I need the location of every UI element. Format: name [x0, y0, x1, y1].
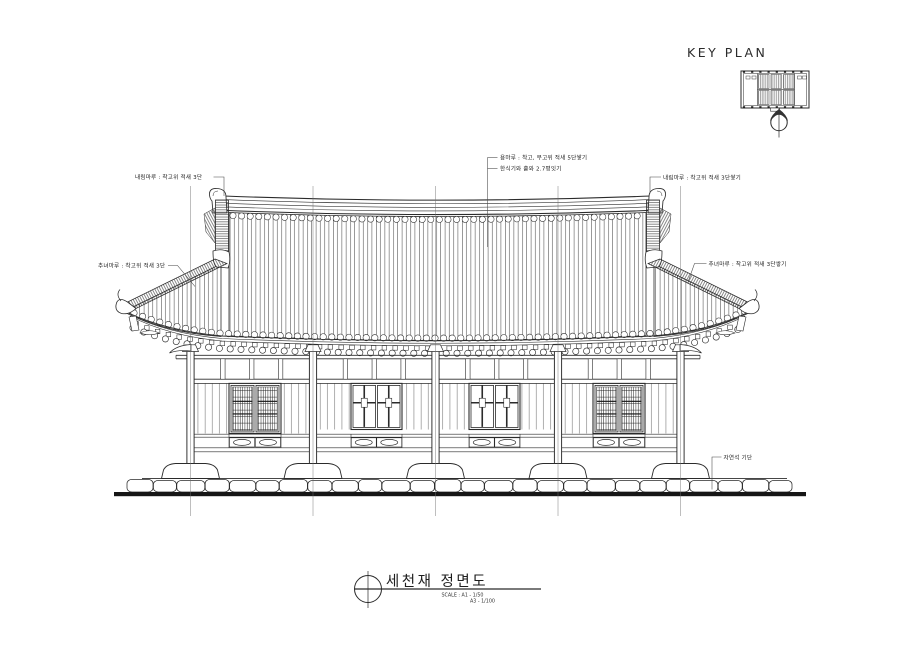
- annotation-foundation: 자연석 기단: [724, 454, 753, 462]
- annotation-left-chunyeo: 추녀마루 : 착고위 적새 3단: [98, 262, 165, 270]
- key-plan-title: KEY PLAN: [687, 45, 767, 60]
- drawing-title: 세천재 정면도: [386, 573, 488, 590]
- annotation-right-chunyeo: 추녀마루 : 착고위 적새 3단쌓기: [709, 260, 787, 268]
- key-plan: KEY PLAN: [687, 45, 809, 138]
- foundation: [114, 464, 806, 497]
- scale-text-2: A3 - 1/100: [470, 599, 495, 605]
- scale-text-1: SCALE : A1 - 1/50: [442, 593, 484, 599]
- title-block: 세천재 정면도 SCALE : A1 - 1/50 A3 - 1/100: [355, 571, 542, 608]
- roof: [116, 188, 759, 356]
- annotation-left-naerim: 내림마루 : 착고위 적새 3단: [135, 173, 202, 181]
- annotation-ridge-1: 용마루 : 착고, 부고위 적새 5단쌓기: [500, 154, 587, 162]
- annotation-right-naerim: 내림마루 : 착고위 적새 3단쌓기: [663, 174, 741, 182]
- drawing-sheet: 용마루 : 착고, 부고위 적새 5단쌓기 한식기와 홑와 2.7평잇기 내림마…: [0, 0, 920, 651]
- annotation-ridge-2: 한식기와 홑와 2.7평잇기: [500, 165, 562, 173]
